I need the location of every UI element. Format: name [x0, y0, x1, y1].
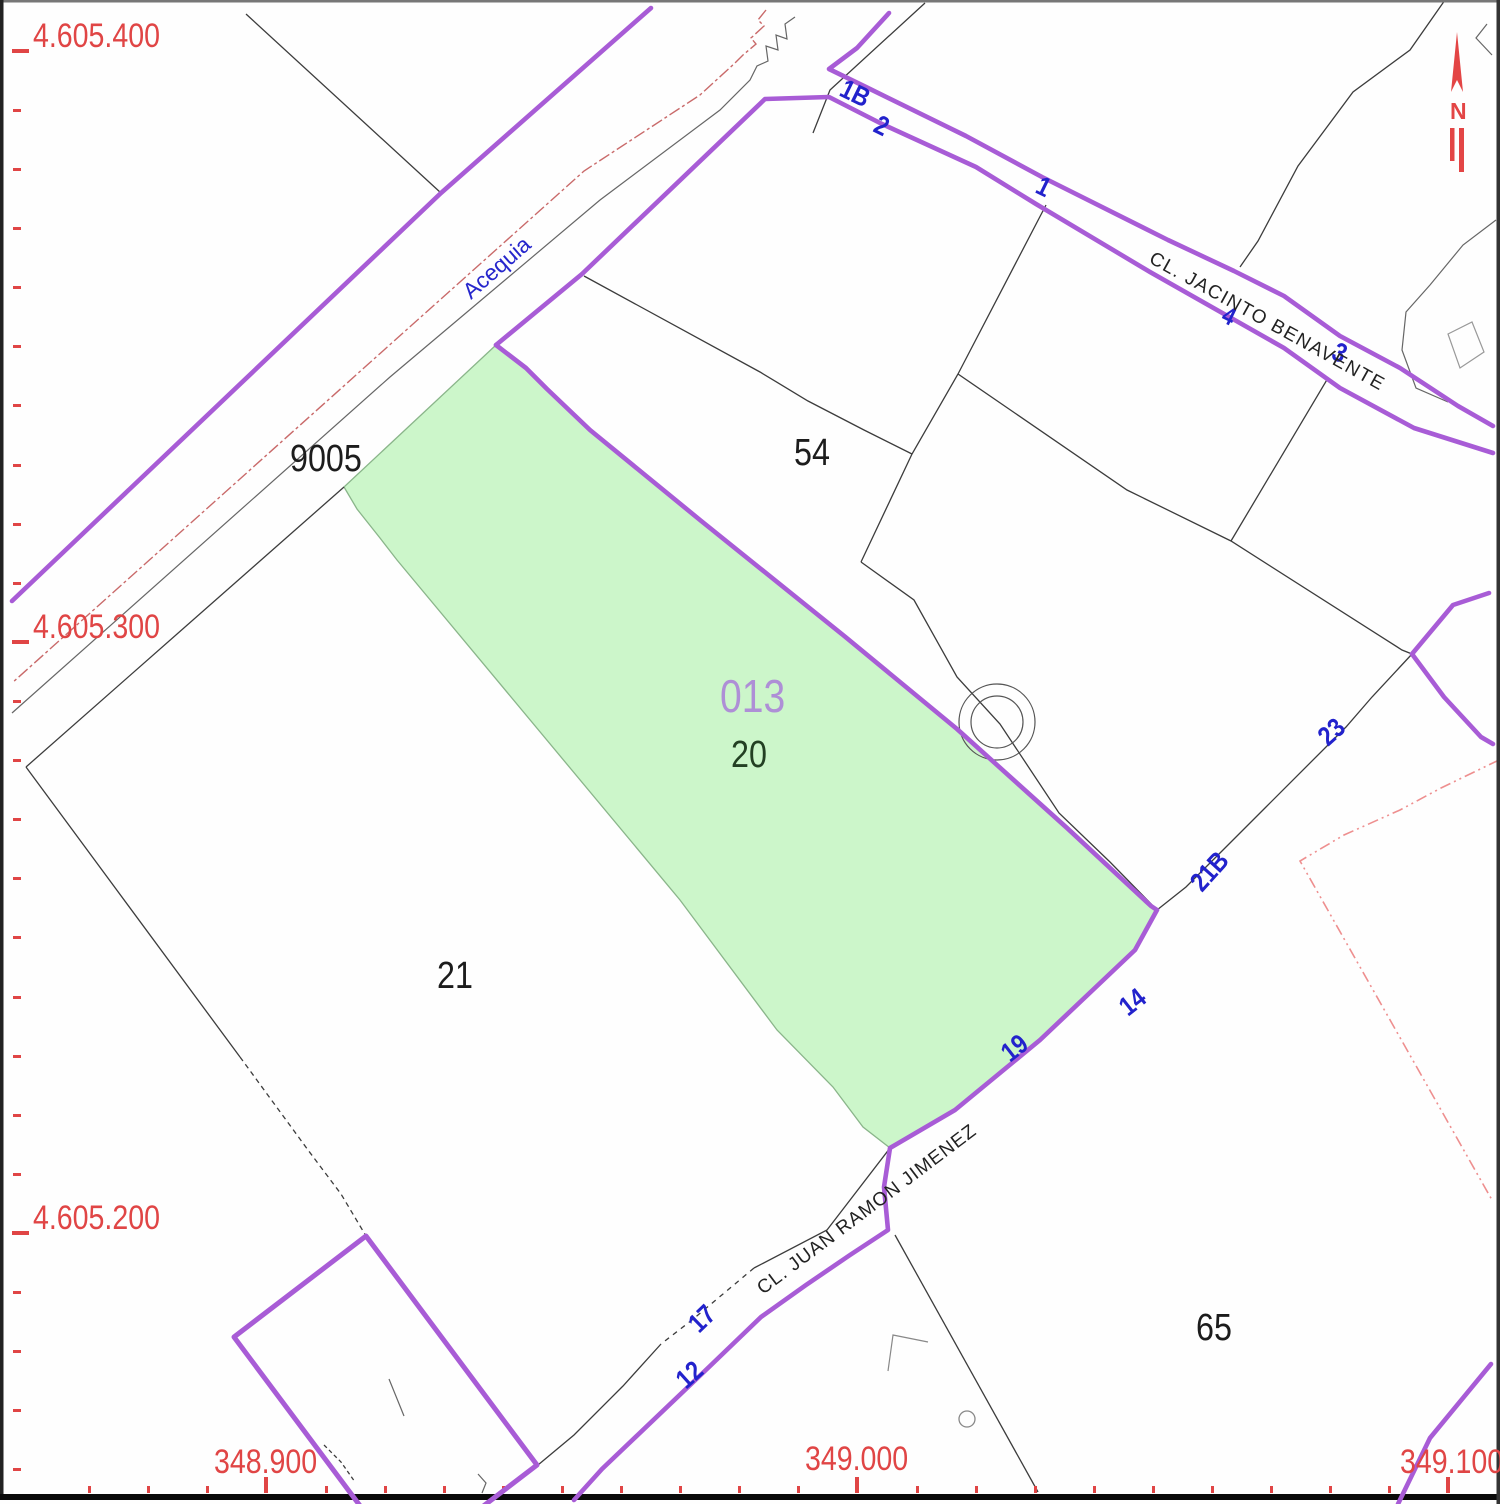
- svg-text:65: 65: [1196, 1307, 1232, 1349]
- svg-text:9005: 9005: [290, 438, 362, 480]
- svg-text:013: 013: [720, 671, 785, 723]
- svg-text:348.900: 348.900: [214, 1443, 317, 1481]
- svg-text:21: 21: [437, 955, 473, 997]
- svg-text:4.605.200: 4.605.200: [33, 1199, 160, 1237]
- svg-text:54: 54: [794, 432, 830, 474]
- svg-text:N: N: [1450, 98, 1467, 124]
- svg-text:349.100: 349.100: [1400, 1443, 1500, 1481]
- svg-text:4.605.300: 4.605.300: [33, 608, 160, 646]
- svg-text:20: 20: [731, 734, 767, 776]
- svg-text:4.605.400: 4.605.400: [33, 17, 160, 55]
- svg-text:349.000: 349.000: [805, 1440, 908, 1478]
